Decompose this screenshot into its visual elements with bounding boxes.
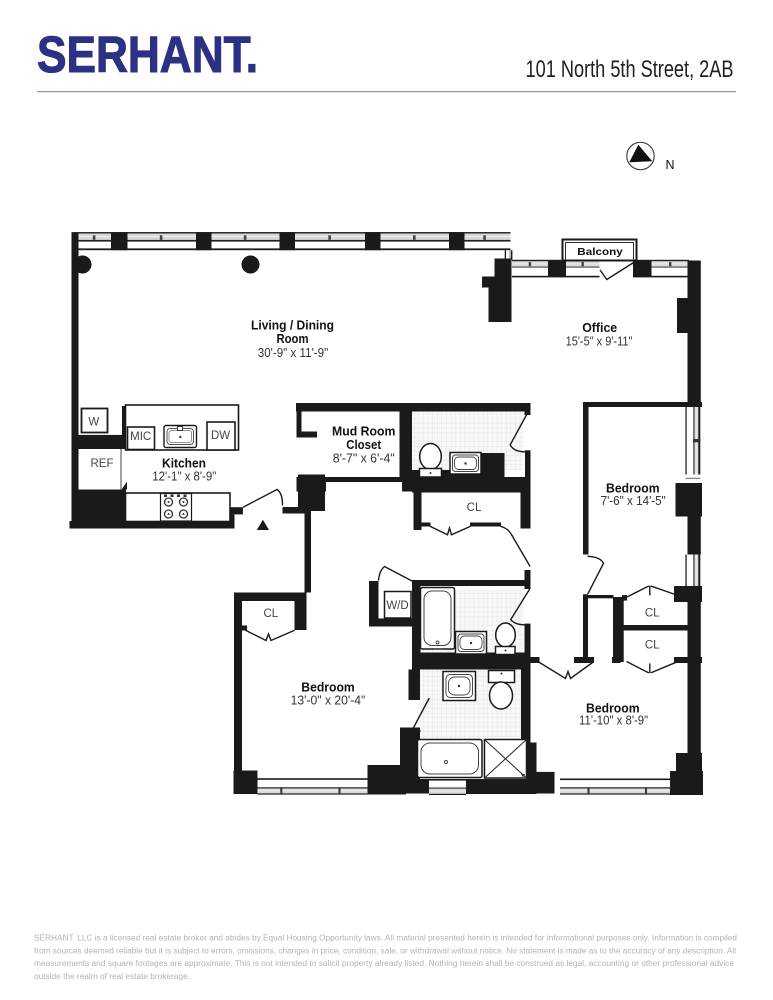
- svg-text:CL: CL: [645, 639, 660, 651]
- svg-text:30'-9" x 11'-9": 30'-9" x 11'-9": [258, 345, 329, 360]
- svg-text:outside the realm of real esta: outside the realm of real estate brokera…: [34, 972, 190, 981]
- svg-text:SERHANT.: SERHANT.: [37, 26, 258, 83]
- svg-text:MIC: MIC: [130, 431, 151, 443]
- svg-text:7'-6" x 14'-5": 7'-6" x 14'-5": [601, 493, 667, 508]
- svg-text:Balcony: Balcony: [577, 246, 623, 258]
- svg-text:11'-10" x 8'-9": 11'-10" x 8'-9": [579, 713, 648, 728]
- svg-text:Room: Room: [277, 332, 309, 346]
- svg-text:SERHANT. LLC is a licensed rea: SERHANT. LLC is a licensed real estate b…: [34, 934, 737, 943]
- svg-text:13'-0" x 20'-4": 13'-0" x 20'-4": [291, 693, 366, 708]
- svg-text:W: W: [88, 416, 99, 428]
- svg-text:CL: CL: [645, 608, 660, 620]
- svg-text:8'-7" x 6'-4": 8'-7" x 6'-4": [333, 451, 395, 466]
- svg-text:CL: CL: [263, 608, 278, 620]
- svg-text:101 North 5th Street, 2AB: 101 North 5th Street, 2AB: [526, 56, 734, 83]
- svg-text:N: N: [666, 158, 675, 172]
- svg-text:Living / Dining: Living / Dining: [251, 319, 334, 333]
- svg-text:15'-5" x 9'-11": 15'-5" x 9'-11": [566, 334, 633, 349]
- svg-text:REF: REF: [91, 458, 114, 470]
- svg-text:12'-1" x 8'-9": 12'-1" x 8'-9": [152, 468, 216, 483]
- svg-text:W/D: W/D: [386, 600, 408, 612]
- svg-text:measurements and square footag: measurements and square footages are app…: [34, 959, 734, 968]
- svg-text:CL: CL: [467, 502, 482, 514]
- svg-text:Mud Room: Mud Room: [332, 425, 395, 439]
- svg-text:from sources deemed reliable: from sources deemed reliable but it is s…: [34, 946, 736, 955]
- svg-text:DW: DW: [211, 430, 230, 442]
